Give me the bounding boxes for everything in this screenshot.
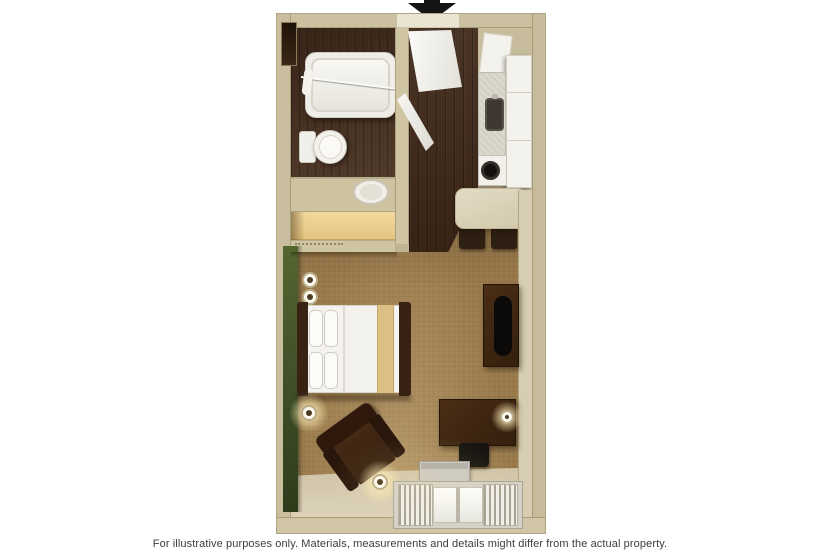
closet-hanging-rod (295, 243, 343, 245)
refrigerator-divider (507, 92, 531, 93)
refrigerator-divider2 (507, 140, 531, 141)
wall-sconce-center (307, 294, 313, 300)
closet-shelf-shadow (291, 212, 305, 240)
outer-wall-right-inner-face (518, 190, 532, 517)
closet-front-wall (291, 240, 397, 252)
ambient-light (327, 434, 517, 524)
bed-headboard (297, 302, 308, 396)
caption: For illustrative purposes only. Material… (0, 538, 820, 550)
refrigerator-cabinet (506, 55, 532, 188)
kitchen-sink (485, 98, 504, 131)
dining-chair-right (491, 227, 517, 249)
toilet-seat (319, 135, 342, 159)
dining-chair-left (459, 227, 485, 249)
closet-shelf (291, 212, 397, 240)
tv (494, 296, 512, 356)
entry-door-opening (397, 14, 459, 28)
floor-lamp-center (306, 410, 312, 416)
shower-niche (281, 22, 297, 66)
kitchen-faucet (492, 94, 498, 99)
interior-wall (395, 28, 409, 252)
vanity-sink-basin (360, 184, 382, 200)
floorplan-image: For illustrative purposes only. Material… (0, 0, 820, 560)
dining-table (455, 188, 526, 229)
bed-runner-stripe (377, 305, 394, 393)
pillow (324, 310, 338, 347)
floorplan (277, 14, 545, 533)
pillow (324, 352, 338, 389)
bed-sheet-fold (343, 305, 345, 393)
green-accent-wall (283, 246, 298, 512)
wall-sconce-center (307, 277, 313, 283)
pillow (309, 352, 323, 389)
bed-footboard (399, 302, 411, 396)
outer-wall-right (532, 14, 545, 533)
closet-carpet-shadow (291, 252, 397, 258)
interior-wall-cap (395, 244, 409, 252)
stove-burner (481, 161, 500, 180)
desk-lamp-center (505, 415, 509, 419)
pillow (309, 310, 323, 347)
